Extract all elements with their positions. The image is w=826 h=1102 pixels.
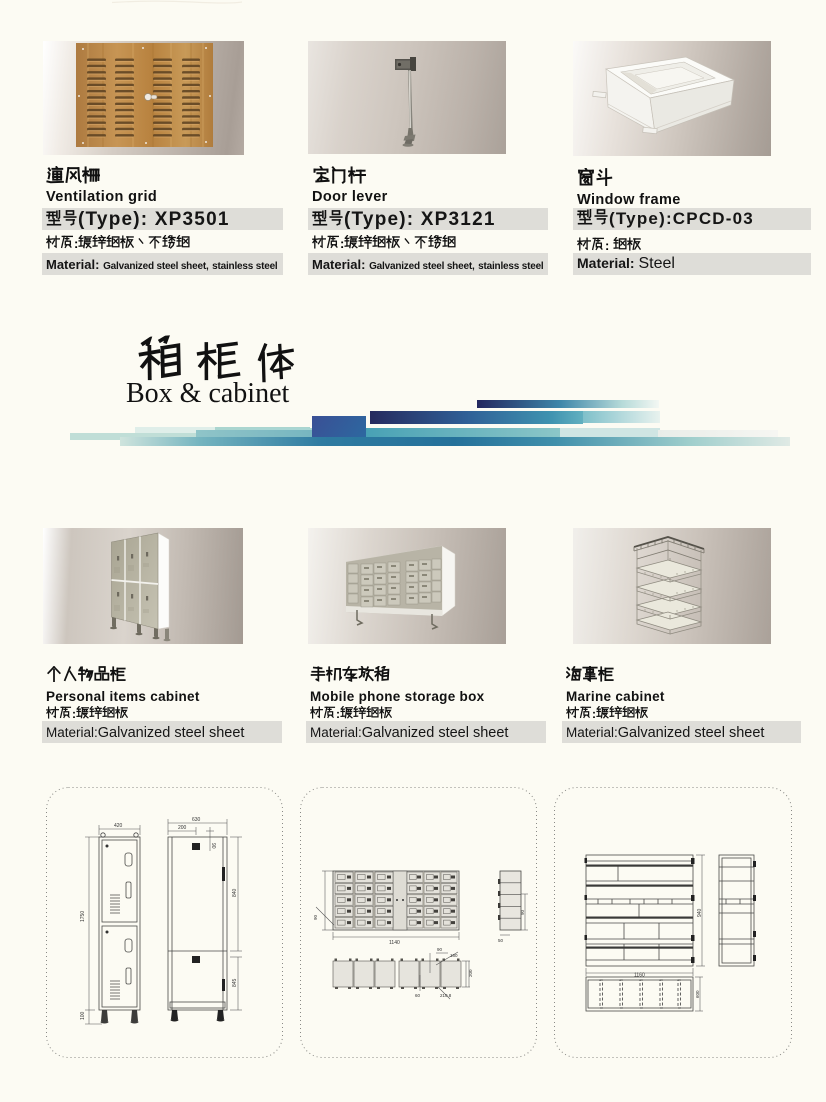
- svg-text:60: 60: [415, 993, 421, 998]
- svg-text:50: 50: [498, 938, 504, 943]
- svg-text:1160: 1160: [634, 973, 645, 979]
- svg-text:200: 200: [178, 825, 187, 831]
- svg-text:90: 90: [437, 947, 443, 952]
- svg-text:840: 840: [232, 888, 238, 897]
- svg-text:630: 630: [192, 817, 201, 823]
- svg-text:200: 200: [468, 969, 473, 977]
- svg-text:420: 420: [114, 823, 123, 829]
- svg-text:845: 845: [232, 978, 238, 987]
- svg-text:180: 180: [450, 953, 458, 958]
- svg-text:90: 90: [520, 909, 525, 915]
- svg-text:210.8: 210.8: [440, 993, 452, 998]
- svg-text:1140: 1140: [389, 940, 400, 946]
- svg-text:1750: 1750: [80, 911, 86, 922]
- svg-text:90: 90: [313, 914, 318, 920]
- svg-text:100: 100: [80, 1011, 86, 1020]
- svg-text:940: 940: [697, 908, 703, 917]
- svg-text:600: 600: [695, 990, 700, 998]
- svg-text:90: 90: [210, 843, 216, 849]
